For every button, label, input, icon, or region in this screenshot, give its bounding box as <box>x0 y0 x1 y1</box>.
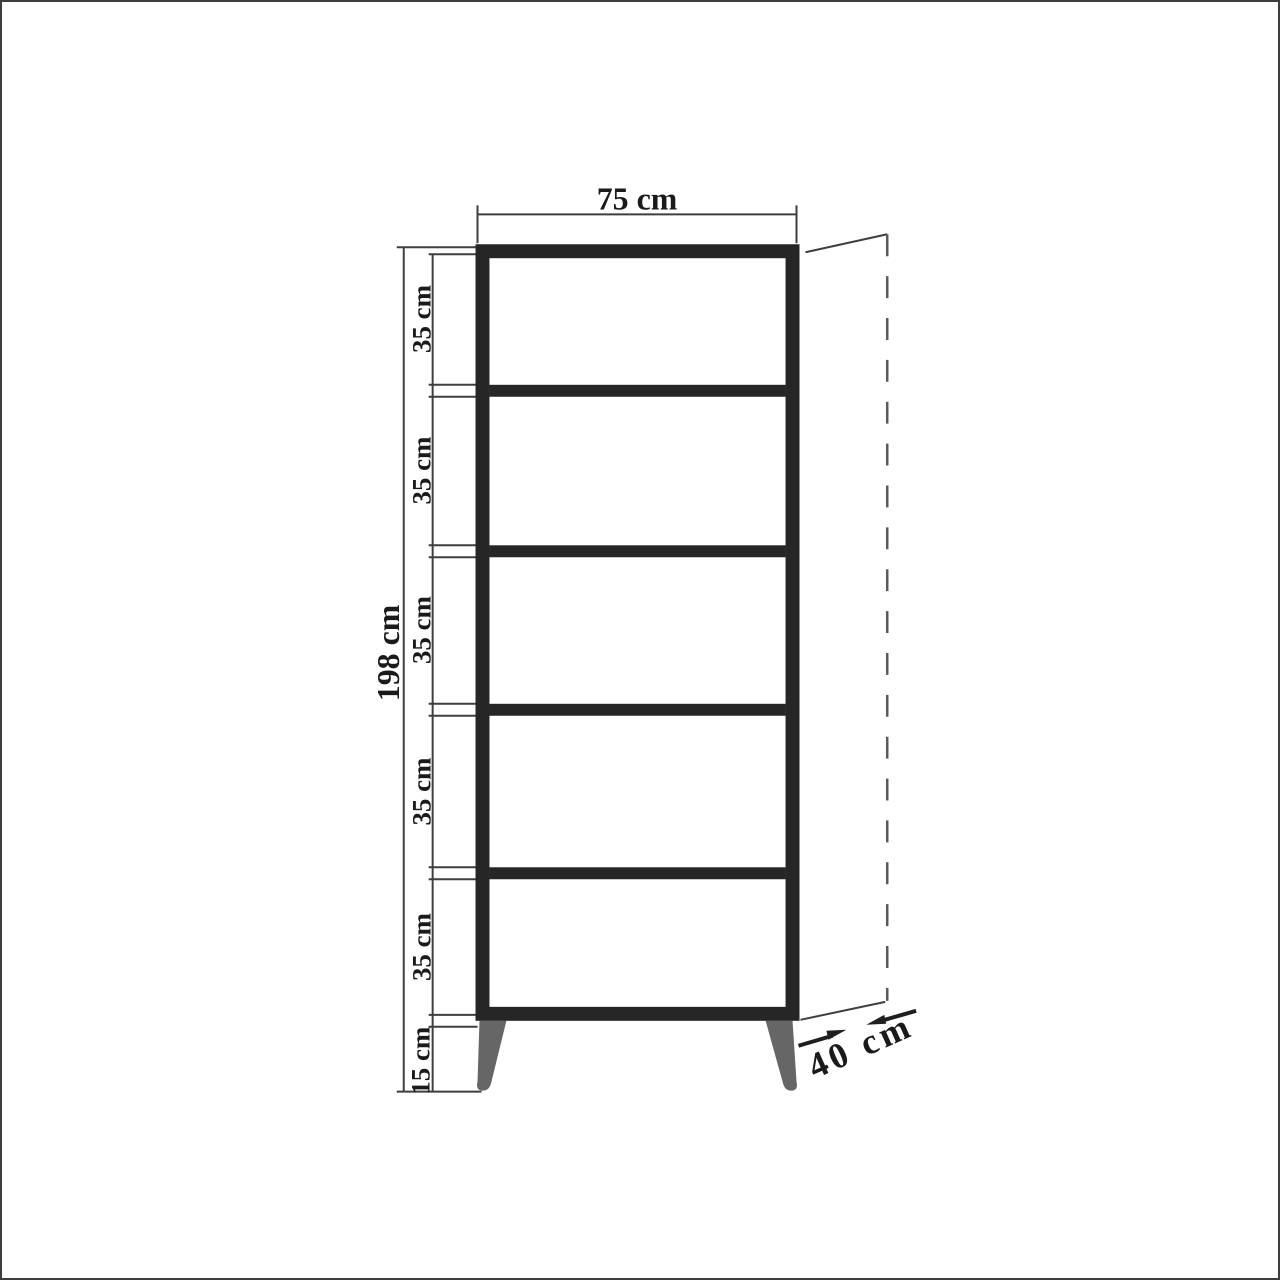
depth-edge-bottom-line <box>800 1002 885 1020</box>
depth-label: 40 cm <box>802 1005 919 1087</box>
bookcase-dimension-diagram: 75 cm 198 cm 35 cm 35 cm 35 cm 3 <box>2 2 1278 1278</box>
shelf-divider-4 <box>489 867 785 879</box>
diagram-canvas: 75 cm 198 cm 35 cm 35 cm 35 cm 3 <box>0 0 1280 1280</box>
shelf-gap-label-2: 35 cm <box>407 437 437 505</box>
width-dimension: 75 cm <box>478 181 797 243</box>
height-label: 198 cm <box>371 604 406 701</box>
depth-dimension: 40 cm <box>799 234 920 1086</box>
shelf-divider-2 <box>489 545 785 557</box>
depth-edge-top-line <box>805 234 887 252</box>
shelf-gap-label-3: 35 cm <box>407 596 437 664</box>
bookcase-frame <box>482 251 792 1014</box>
shelf-gap-label-4: 35 cm <box>407 758 437 826</box>
shelf-divider-3 <box>489 704 785 716</box>
leg-height-label: 15 cm <box>406 1027 436 1095</box>
bookcase <box>477 251 797 1090</box>
width-label: 75 cm <box>597 181 678 216</box>
shelf-divider-1 <box>489 385 785 397</box>
shelf-gap-label-5: 35 cm <box>407 913 437 981</box>
shelf-dimension-chain: 35 cm 35 cm 35 cm 35 cm 35 cm 15 cm <box>406 254 478 1094</box>
shelf-gap-label-1: 35 cm <box>407 285 437 353</box>
bookcase-leg-left <box>477 1021 506 1091</box>
bookcase-leg-right <box>766 1021 797 1091</box>
